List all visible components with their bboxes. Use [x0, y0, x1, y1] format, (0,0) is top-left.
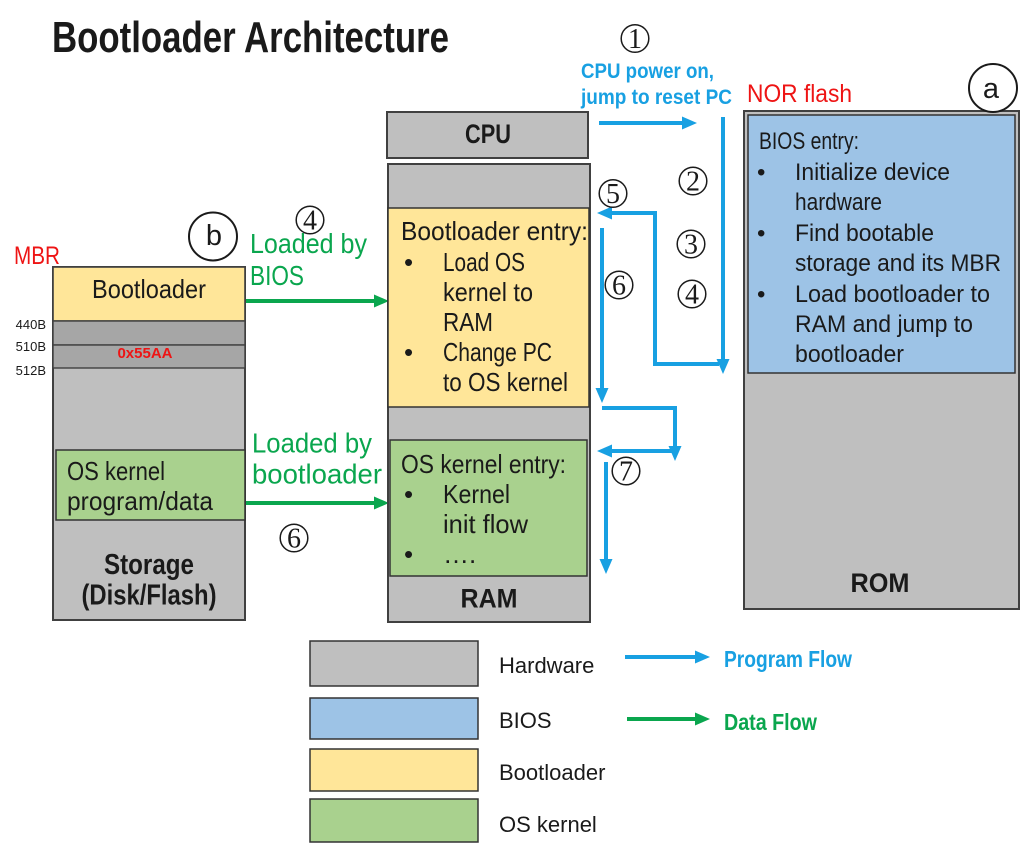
svg-text:Data Flow: Data Flow [724, 709, 817, 735]
svg-text:0x55AA: 0x55AA [117, 345, 172, 362]
svg-text:6: 6 [287, 524, 301, 555]
svg-text:hardware: hardware [795, 189, 882, 216]
svg-text:•: • [404, 539, 413, 569]
svg-text:Bootloader entry:: Bootloader entry: [401, 216, 588, 246]
svg-text:OS kernel entry:: OS kernel entry: [401, 449, 566, 479]
svg-text:a: a [983, 73, 1000, 105]
svg-text:•: • [757, 159, 765, 186]
svg-text:to OS kernel: to OS kernel [443, 367, 568, 397]
svg-text:Bootloader: Bootloader [92, 274, 206, 304]
svg-text:Change PC: Change PC [443, 337, 552, 367]
svg-text:Load bootloader to: Load bootloader to [795, 281, 990, 308]
svg-text:RAM and jump to: RAM and jump to [795, 311, 973, 338]
svg-text:storage and its MBR: storage and its MBR [795, 250, 1001, 277]
svg-text:•: • [757, 281, 765, 308]
svg-text:•: • [404, 247, 413, 277]
svg-text:RAM: RAM [461, 584, 518, 614]
svg-text:6: 6 [612, 271, 626, 302]
svg-text:BIOS: BIOS [250, 260, 304, 291]
svg-text:(Disk/Flash): (Disk/Flash) [82, 580, 217, 612]
svg-text:Load OS: Load OS [443, 247, 525, 277]
svg-text:1: 1 [628, 24, 642, 55]
svg-text:Bootloader Architecture: Bootloader Architecture [52, 13, 449, 62]
svg-text:CPU power on,: CPU power on, [581, 60, 714, 83]
svg-text:3: 3 [684, 230, 698, 261]
svg-text:•: • [404, 479, 413, 509]
svg-text:init flow: init flow [443, 509, 528, 539]
svg-text:512B: 512B [16, 363, 46, 378]
svg-text:ROM: ROM [851, 568, 910, 598]
svg-text:bootloader: bootloader [252, 459, 382, 490]
svg-text:BIOS: BIOS [499, 708, 552, 733]
svg-text:•: • [757, 220, 765, 247]
svg-text:510B: 510B [16, 339, 46, 354]
svg-text:Storage: Storage [104, 549, 194, 581]
svg-text:CPU: CPU [465, 119, 511, 149]
svg-text:4: 4 [685, 280, 699, 311]
svg-text:440B: 440B [16, 317, 46, 332]
svg-text:2: 2 [686, 167, 700, 198]
svg-text:•: • [404, 337, 413, 367]
svg-text:Initialize device: Initialize device [795, 159, 950, 186]
svg-text:Bootloader: Bootloader [499, 760, 605, 785]
svg-text:MBR: MBR [14, 242, 60, 270]
svg-text:Program Flow: Program Flow [724, 646, 852, 672]
svg-text:Find bootable: Find bootable [795, 220, 934, 247]
svg-text:b: b [206, 220, 222, 252]
svg-text:5: 5 [606, 179, 620, 210]
svg-text:OS kernel: OS kernel [499, 812, 597, 837]
svg-text:7: 7 [619, 457, 633, 488]
svg-text:Loaded by: Loaded by [250, 228, 367, 259]
svg-text:kernel to: kernel to [443, 277, 533, 307]
svg-text:NOR flash: NOR flash [747, 80, 852, 108]
svg-text:OS kernel: OS kernel [67, 456, 165, 486]
svg-text:Kernel: Kernel [443, 479, 510, 509]
svg-text:jump to reset PC: jump to reset PC [580, 86, 732, 109]
svg-text:BIOS entry:: BIOS entry: [759, 128, 859, 155]
svg-text:program/data: program/data [67, 486, 213, 516]
svg-text:RAM: RAM [443, 307, 493, 337]
svg-text:….: …. [443, 539, 476, 569]
svg-text:Hardware: Hardware [499, 653, 594, 678]
svg-text:Loaded by: Loaded by [252, 428, 372, 459]
svg-text:bootloader: bootloader [795, 341, 904, 368]
